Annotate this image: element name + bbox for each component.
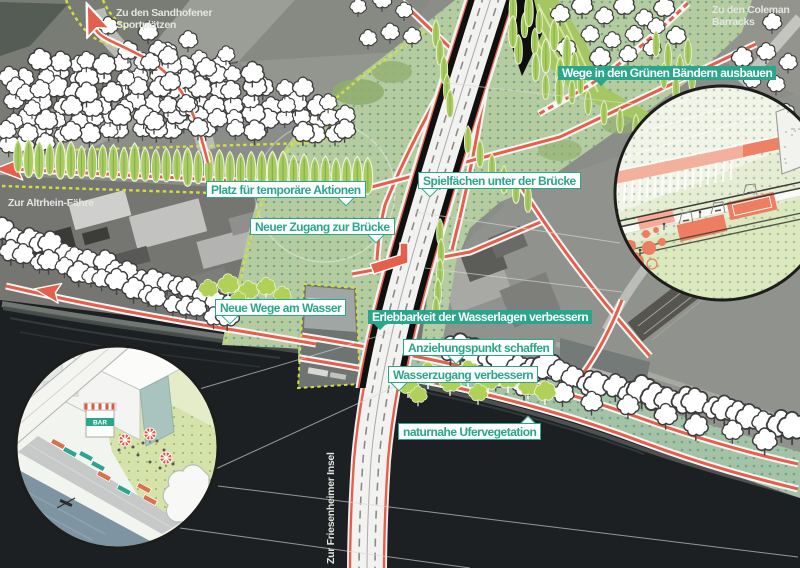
svg-text:BAR: BAR [93, 420, 107, 427]
